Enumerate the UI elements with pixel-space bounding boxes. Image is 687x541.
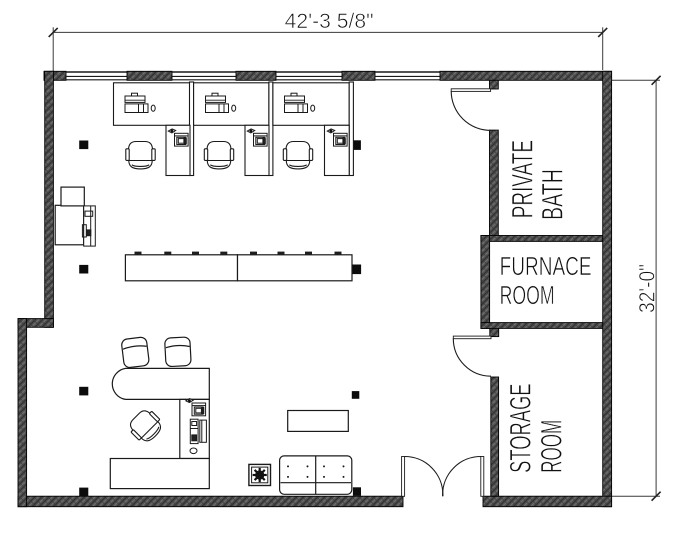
svg-text:BATH: BATH: [537, 169, 570, 220]
svg-text:ROOM: ROOM: [500, 282, 555, 310]
svg-text:ROOM: ROOM: [536, 420, 569, 473]
svg-text:STORAGE: STORAGE: [505, 384, 538, 473]
svg-text:32'-0": 32'-0": [635, 264, 660, 313]
svg-text:42'-3 5/8": 42'-3 5/8": [285, 10, 374, 33]
svg-text:PRIVATE: PRIVATE: [507, 140, 540, 218]
svg-text:FURNACE: FURNACE: [500, 253, 592, 281]
